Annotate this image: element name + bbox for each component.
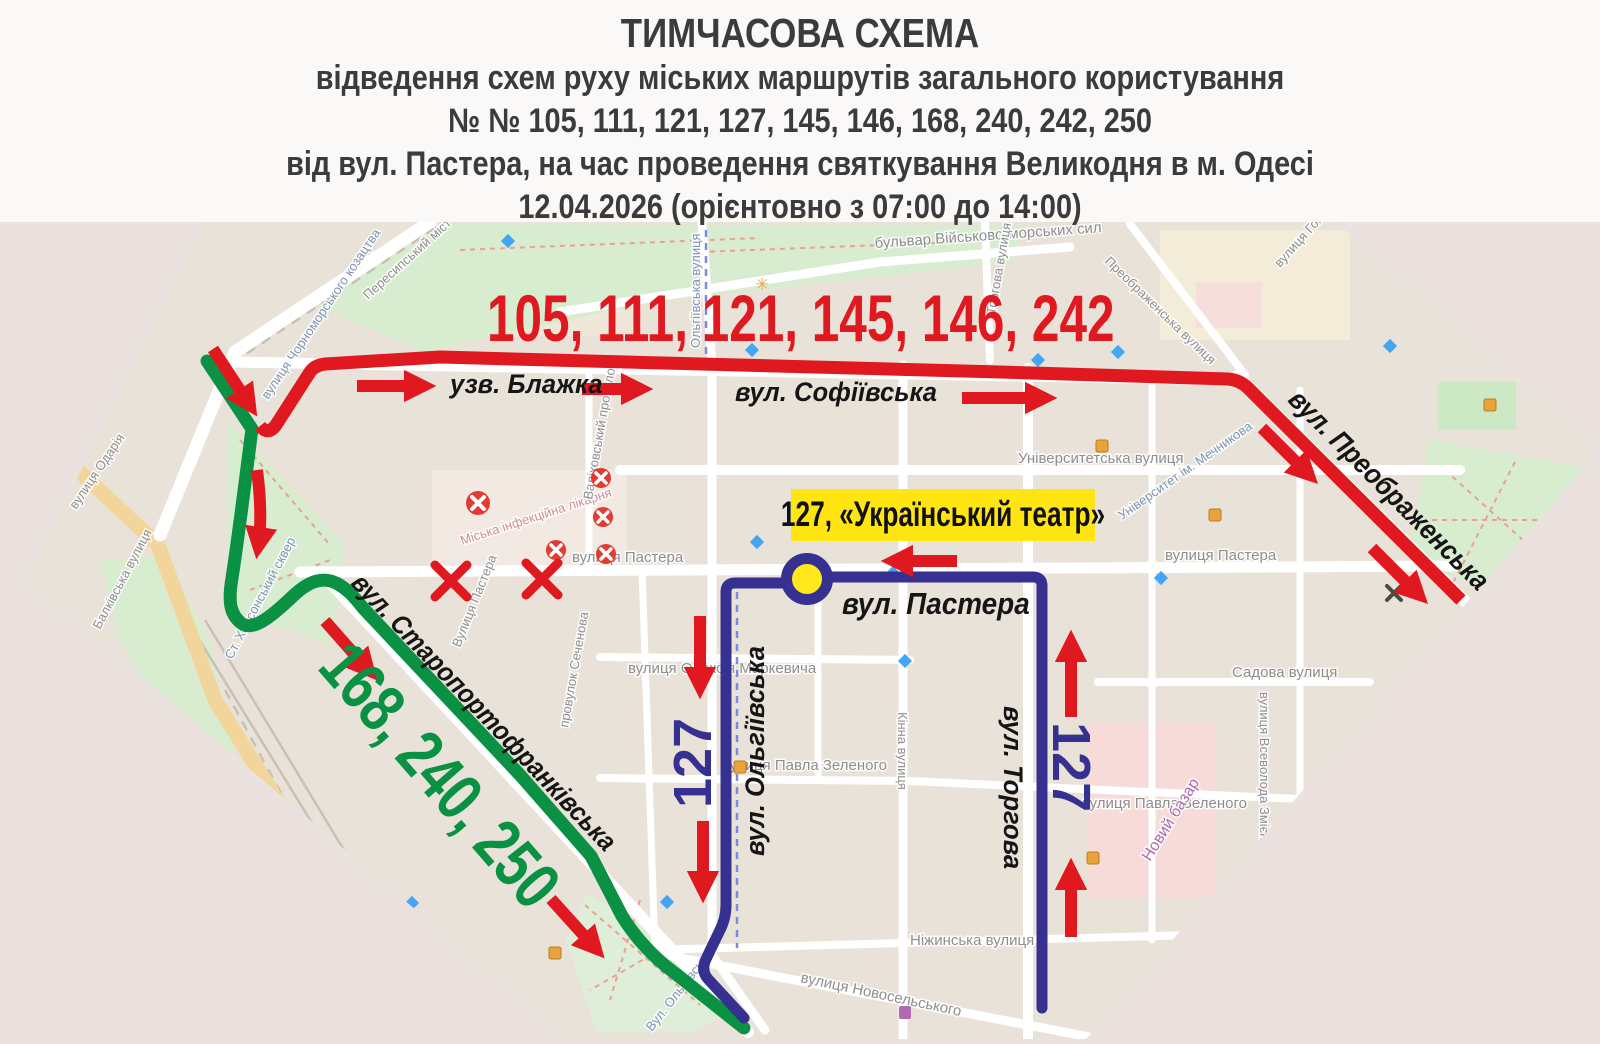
label-pastera-w: вулиця Пастера bbox=[572, 549, 684, 566]
hospital-closed-icon bbox=[466, 491, 490, 515]
street-sofiivska: вул. Софіївська bbox=[735, 376, 937, 407]
header-datetime: 12.04.2026 (орієнтовно з 07:00 до 14:00) bbox=[120, 186, 1480, 229]
label-sadova: Садова вулиця bbox=[1232, 664, 1337, 681]
header-subtitle-1: відведення схем руху міських маршрутів з… bbox=[120, 57, 1480, 100]
label-zmiienka: вулиця Всеволода Змієнка bbox=[1257, 692, 1272, 854]
red-routes-label: 105, 111, 121, 145, 146, 242 bbox=[487, 282, 1115, 356]
label-zelenoho-e: вулиця Павла Зеленого bbox=[1082, 795, 1247, 812]
hospital-closed-icon bbox=[546, 540, 566, 560]
arrow-down bbox=[257, 470, 260, 548]
hospital-closed-icon bbox=[593, 507, 613, 527]
label-nizhynska: Ніжинська вулиця bbox=[910, 932, 1034, 949]
header: ТИМЧАСОВА СХЕМА відведення схем руху міс… bbox=[0, 0, 1600, 222]
street-torhova: вул. Торгова bbox=[998, 706, 1029, 869]
navy-route-label-right: 127 bbox=[1041, 722, 1101, 812]
hospital-closed-icon bbox=[596, 544, 616, 564]
street-pastera: вул. Пастера bbox=[842, 587, 1030, 622]
hospital-closed-icon bbox=[591, 468, 611, 488]
page-title: ТИМЧАСОВА СХЕМА bbox=[120, 10, 1480, 57]
label-universytetska: Університетська вулиця bbox=[1018, 450, 1183, 467]
street-blazhka: узв. Блажка bbox=[448, 368, 602, 399]
navy-route-label-left: 127 bbox=[663, 718, 723, 808]
header-subtitle-2: від вул. Пастера, на час проведення свят… bbox=[120, 143, 1480, 186]
street-olhiivska: вул. Ольгіївська bbox=[739, 646, 770, 856]
theater-badge: 127, «Український театр» bbox=[781, 489, 1105, 541]
label-kinna: Кінна вулиця bbox=[895, 712, 910, 790]
header-route-numbers: № № 105, 111, 121, 127, 145, 146, 168, 2… bbox=[120, 100, 1480, 143]
shop-icon bbox=[899, 1006, 911, 1019]
label-pastera-e: вулиця Пастера bbox=[1165, 547, 1277, 564]
theater-stop-marker bbox=[787, 559, 828, 600]
theater-badge-text: 127, «Український театр» bbox=[781, 494, 1105, 534]
